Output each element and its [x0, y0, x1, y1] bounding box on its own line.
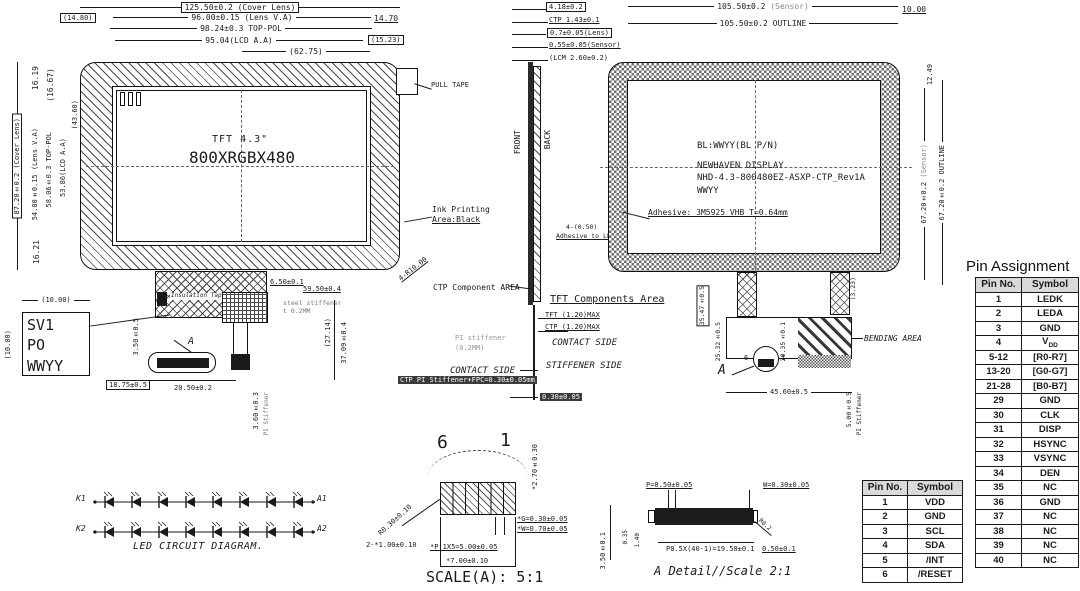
table-cell: 3 — [976, 321, 1022, 336]
extension-line — [668, 490, 669, 508]
dim-label-box-width: (10.00) — [22, 296, 90, 304]
screen-size-label: TFT 4.3" — [212, 134, 268, 146]
table-cell: DEN — [1022, 466, 1079, 481]
dim-37-09: 37.09±0.4 — [340, 322, 348, 364]
table-row: 40NC — [976, 553, 1079, 568]
detail-a-ref-back: A — [718, 364, 726, 379]
table-cell: 39 — [976, 539, 1022, 554]
side-fpc-line — [533, 305, 535, 400]
dim-connector-end-pads: 2-*1.00±0.10 — [366, 541, 417, 549]
part-number-label: NHD-4.3-800480EZ-ASXP-CTP_Rev1A — [697, 173, 865, 183]
dim-side-lcm: (LCM 2.60±0.2) — [549, 54, 608, 62]
table-cell: GND — [908, 510, 963, 525]
table-cell: 4 — [976, 336, 1022, 351]
led-pad — [136, 92, 141, 106]
dim-43-60: (43.60) — [71, 100, 79, 130]
table-cell: LEDK — [1022, 292, 1079, 307]
pin-table-ctp: Pin No. Symbol 1VDD2GND3SCL4SDA5/INT6/RE… — [862, 480, 963, 583]
dim-fpc-stack: CTP PI Stiffener+FPC=0.30±0.05mm — [398, 376, 537, 384]
table-cell: [B0-B7] — [1022, 379, 1079, 394]
table-cell: NC — [1022, 539, 1079, 554]
pull-tape-tab — [396, 68, 418, 95]
adhesive-lens-note-line1: 4-(0.50) — [566, 224, 597, 231]
table-cell: [R0-R7] — [1022, 350, 1079, 365]
leader-line — [404, 217, 432, 223]
table-cell: VSYNC — [1022, 452, 1079, 467]
extension-line — [538, 331, 568, 332]
detail-a-connector — [148, 352, 216, 373]
dim-16-21: 16.21 — [32, 240, 41, 264]
table-row: 33VSYNC — [976, 452, 1079, 467]
dim-front-lens-va-height: 54.80±0.15 (Lens V.A) — [31, 128, 39, 220]
bending-area-label: BENDING AREA — [864, 334, 922, 343]
pin-table-ctp-header-pin: Pin No. — [863, 481, 908, 496]
dim-front-top-pol-width: 98.24±0.3 TOP-POL — [110, 24, 372, 33]
table-cell: 31 — [976, 423, 1022, 438]
table-cell: 30 — [976, 408, 1022, 423]
table-row: 3GND — [976, 321, 1079, 336]
pin-table-main-header-pin: Pin No. — [976, 278, 1022, 293]
leader-line — [852, 338, 863, 339]
leader-line — [520, 370, 538, 371]
dim-25-32: 25.32±0.5 — [715, 322, 722, 361]
connector-pin6-label: 6 — [437, 433, 448, 454]
contact-side-right-label: CONTACT SIDE — [552, 338, 617, 348]
table-cell: 29 — [976, 394, 1022, 409]
table-cell: NC — [1022, 481, 1079, 496]
dim-10-00: 10.00 — [902, 5, 926, 14]
serial-label-box: SV1 PO WWYY — [22, 312, 90, 376]
stiffener-strip — [798, 355, 851, 368]
table-row: 29GND — [976, 394, 1079, 409]
dim-front-lcd-aa-width: 95.04(LCD A.A) — [115, 36, 363, 45]
table-row: 39NC — [976, 539, 1079, 554]
pin-table-main-header-symbol: Symbol — [1022, 278, 1079, 293]
detail-pin6-label: 6 — [744, 354, 748, 362]
led-string-1 — [93, 490, 315, 510]
ink-printing-note-line1: Ink Printing — [432, 205, 490, 214]
date-code-label: WWYY — [697, 186, 719, 196]
led-pad — [120, 92, 125, 106]
dim-45-60: 45.60±0.5 — [726, 388, 852, 396]
extension-line — [440, 517, 441, 567]
extension-line — [512, 60, 548, 61]
led-diagram-caption: LED CIRCUIT DIAGRAM. — [133, 541, 263, 553]
screen-resolution-label: 800XRGBX480 — [152, 149, 332, 167]
dim-20-50: 20.50±0.2 — [174, 384, 212, 392]
dim-front-cover-height: 87.20±0.2 (Cover Lens) — [12, 62, 22, 270]
table-cell: 2 — [976, 307, 1022, 322]
dim-ctp-max: CTP (1.20)MAX — [545, 323, 600, 331]
table-row: 30CLK — [976, 408, 1079, 423]
table-cell: 13-20 — [976, 365, 1022, 380]
fpc-connector-end — [231, 354, 250, 370]
dim-a-pad: W=0.30±0.05 — [763, 481, 809, 489]
a-detail-contact-bar — [655, 508, 753, 525]
table-row: 1LEDK — [976, 292, 1079, 307]
leader-line — [90, 314, 169, 326]
extension-line — [610, 505, 611, 560]
pin-table-ctp-header-symbol: Symbol — [908, 481, 963, 496]
table-cell: SCL — [908, 524, 963, 539]
dim-side-ctp: CTP 1.43±0.1 — [549, 16, 600, 24]
table-row: 5-12[R0-R7] — [976, 350, 1079, 365]
table-cell: 5-12 — [976, 350, 1022, 365]
pi-stiffener-side-line1: PI stiffener — [455, 334, 506, 342]
led-a2-label: A2 — [317, 524, 327, 533]
table-cell: 5 — [863, 553, 908, 568]
steel-stiffener-label-line2: t 0.2MM — [283, 308, 310, 315]
dim-3-50-front: 3.50±0.5 — [132, 318, 140, 356]
corner-radius-label: 4-R10.00 — [397, 255, 429, 282]
dimension-line — [658, 542, 754, 543]
table-cell: 1 — [863, 495, 908, 510]
contact-side-left-label: CONTACT SIDE — [450, 366, 515, 376]
table-cell: 35 — [976, 481, 1022, 496]
table-cell: NC — [1022, 524, 1079, 539]
dim-connector-height: *2.70±0.30 — [531, 444, 539, 490]
dim-a-0-50: 0.50±0.1 — [762, 545, 796, 553]
table-cell: /INT — [908, 553, 963, 568]
serial-line3: WWYY — [27, 356, 85, 376]
table-cell: VDD — [1022, 336, 1079, 351]
brand-label: NEWHAVEN DISPLAY — [697, 161, 784, 171]
dim-side-sensor: 0.55±0.05(Sensor) — [549, 41, 621, 49]
table-row: 31DISP — [976, 423, 1079, 438]
table-cell: 3 — [863, 524, 908, 539]
ctp-component-area-label: CTP Component AREA — [433, 283, 520, 292]
table-cell: 32 — [976, 437, 1022, 452]
connector-contact-bar — [157, 358, 209, 368]
dim-0-30: 0.30±0.05 — [540, 393, 582, 401]
extension-line — [512, 47, 548, 48]
adhesive-note: Adhesive: 3M5925 VHB T=0.64mm — [648, 208, 788, 217]
serial-line1: SV1 — [27, 315, 85, 335]
connector-pin1-label: 1 — [500, 431, 511, 452]
table-cell: 21-28 — [976, 379, 1022, 394]
insulation-tape-label: Insulation Tape — [170, 293, 226, 300]
table-cell: DISP — [1022, 423, 1079, 438]
drawing-sheet: 125.50±0.2 (Cover Lens) (14.80) 96.00±0.… — [0, 0, 1080, 591]
pin-table-main-body: 1LEDK2LEDA3GND4VDD5-12[R0-R7]13-20[G0-G7… — [976, 292, 1079, 568]
table-cell: GND — [1022, 321, 1079, 336]
dim-a-1-40: 1.40 — [635, 533, 642, 547]
dim-connector-pad-width: *W=0.70±0.05 — [517, 525, 568, 533]
table-row: 34DEN — [976, 466, 1079, 481]
dim-front-right-offset: 14.70 — [374, 14, 398, 23]
dim-front-cover-width: 125.50±0.2 (Cover Lens) — [80, 2, 400, 13]
dim-3-23: (3.23) — [850, 277, 857, 300]
connector-detail-caption: SCALE(A): 5:1 — [426, 569, 543, 586]
table-row: 32HSYNC — [976, 437, 1079, 452]
table-cell: NC — [1022, 553, 1079, 568]
dimension-line — [106, 380, 236, 381]
steel-stiffener-area — [222, 292, 268, 323]
dim-35-47: 35.47±0.5 — [696, 285, 709, 326]
led-k2-label: K2 — [76, 524, 86, 533]
table-row: 2GND — [863, 510, 963, 525]
bending-area-hatch — [798, 318, 851, 355]
table-row: 5/INT — [863, 553, 963, 568]
led-pads — [120, 92, 142, 106]
connector-arc — [428, 450, 528, 476]
detail-a-circle — [753, 346, 779, 372]
led-a1-label: A1 — [317, 494, 327, 503]
dim-back-sensor-width: 105.50±0.2 (Sensor) — [628, 2, 898, 11]
tail-pad — [157, 292, 167, 306]
dim-front-lcd-aa-height: 53.86(LCD A.A) — [59, 138, 67, 197]
dim-a-0-35: 0.35 — [623, 530, 630, 544]
table-row: 37NC — [976, 510, 1079, 525]
table-row: 21-28[B0-B7] — [976, 379, 1079, 394]
dim-connector-gap: *G=0.30±0.05 — [517, 515, 568, 523]
led-k1-label: K1 — [76, 494, 86, 503]
table-row: 2LEDA — [976, 307, 1079, 322]
extension-line — [495, 517, 496, 535]
detail-a-ref-front: A — [188, 336, 194, 348]
pin-assignment-title: Pin Assignment — [966, 258, 1069, 275]
side-front-label: FRONT — [513, 130, 522, 154]
dim-a-length: P0.5X(40-1)=19.50±0.1 — [666, 545, 755, 553]
dim-back-sensor-height: 67.20±0.2 (Sensor) — [920, 88, 928, 280]
tft-components-area-label: TFT Components Area — [550, 294, 664, 306]
table-cell: 36 — [976, 495, 1022, 510]
table-cell: [G0-G7] — [1022, 365, 1079, 380]
table-cell: VDD — [908, 495, 963, 510]
extension-line — [538, 318, 568, 319]
dim-side-total: 4.18±0.2 — [546, 2, 586, 12]
ink-printing-note-line2: Area:Black — [432, 215, 480, 224]
led-string-2 — [93, 520, 315, 540]
pi-stiffener-note-back: PI Stiffener — [857, 392, 864, 435]
table-cell: 6 — [863, 568, 908, 583]
serial-line2: PO — [27, 335, 85, 355]
table-cell: NC — [1022, 510, 1079, 525]
extension-line — [512, 22, 548, 23]
table-row: 35NC — [976, 481, 1079, 496]
extension-line — [515, 517, 516, 567]
dim-a-3-50: 3.50±0.1 — [599, 532, 607, 570]
pi-stiffener-side-line2: (0.2MM) — [455, 344, 485, 352]
dim-front-top-pol-height: 58.06±0.3 TOP-POL — [45, 132, 53, 207]
detail-a-contact-bar — [758, 359, 774, 367]
dim-6-50: 6.50±0.1 — [270, 278, 304, 286]
table-cell: 38 — [976, 524, 1022, 539]
dim-59-50: 59.50±0.4 — [303, 285, 341, 293]
table-row: 3SCL — [863, 524, 963, 539]
table-cell: /RESET — [908, 568, 963, 583]
table-cell: HSYNC — [1022, 437, 1079, 452]
dim-20-35: 20.35±0.1 — [780, 322, 787, 361]
table-cell: 40 — [976, 553, 1022, 568]
leader-line — [732, 366, 755, 376]
connector-pads — [440, 482, 516, 515]
dim-12-49: 12.49 — [926, 64, 934, 85]
dim-16-19: 16.19 — [31, 66, 40, 90]
dimension-line — [440, 566, 516, 567]
table-cell: LEDA — [1022, 307, 1079, 322]
pull-tape-label: PULL TAPE — [431, 81, 469, 89]
dim-connector-width: *7.00±0.10 — [446, 557, 488, 565]
table-cell: 1 — [976, 292, 1022, 307]
backlight-pn-label: BL:WWYY(BL P/N) — [697, 141, 778, 151]
table-row: 4VDD — [976, 336, 1079, 351]
extension-line — [504, 517, 505, 535]
dim-back-outline-width: 105.50±0.2 OUTLINE — [628, 19, 898, 28]
table-cell: GND — [1022, 495, 1079, 510]
dim-front-lens-va-width: 96.00±0.15 (Lens V.A) — [113, 13, 371, 22]
table-cell: 33 — [976, 452, 1022, 467]
a-detail-caption: A Detail//Scale 2:1 — [654, 565, 791, 579]
table-cell: 2 — [863, 510, 908, 525]
dim-front-right-offset2: (15.23) — [368, 35, 404, 45]
table-cell: GND — [1022, 394, 1079, 409]
a-detail-left-step — [648, 510, 655, 523]
dim-5-00: 5.00±0.5 — [846, 392, 853, 427]
side-profile-lcm — [533, 66, 541, 302]
table-cell: 4 — [863, 539, 908, 554]
back-tape-tab-right — [830, 272, 850, 315]
extension-line — [675, 490, 676, 508]
dim-27-14: (27.14) — [324, 318, 332, 348]
table-row: 1VDD — [863, 495, 963, 510]
table-cell: 34 — [976, 466, 1022, 481]
dim-3-60: 3.60±0.3 — [252, 392, 260, 430]
dim-front-center-width: (62.75) — [242, 47, 370, 56]
table-cell: CLK — [1022, 408, 1079, 423]
dim-back-outline-height: 67.20±0.2 OUTLINE — [938, 80, 946, 285]
extension-line — [512, 9, 546, 10]
table-row: 4SDA — [863, 539, 963, 554]
table-row: 13-20[G0-G7] — [976, 365, 1079, 380]
extension-line — [749, 490, 750, 508]
extension-line — [334, 300, 335, 380]
table-cell: SDA — [908, 539, 963, 554]
table-row: 38NC — [976, 524, 1079, 539]
table-row: 36GND — [976, 495, 1079, 510]
table-cell: 37 — [976, 510, 1022, 525]
stiffener-side-label: STIFFENER SIDE — [546, 361, 622, 371]
dim-label-box-height: (10.00) — [4, 330, 12, 360]
extension-line — [512, 34, 546, 35]
fpc-tail — [233, 322, 248, 356]
pin-table-main: Pin No. Symbol 1LEDK2LEDA3GND4VDD5-12[R0… — [975, 277, 1079, 568]
dim-16-67: (16.67) — [46, 68, 55, 102]
back-tape-tab-left — [737, 272, 757, 317]
dim-front-left-offset: (14.80) — [60, 13, 96, 23]
pin-table-ctp-body: 1VDD2GND3SCL4SDA5/INT6/RESET — [863, 495, 963, 582]
table-row: 6/RESET — [863, 568, 963, 583]
pi-stiffener-note-front: PI Stiffener — [264, 392, 271, 435]
led-pad — [128, 92, 133, 106]
dim-a-pitch: P=0.50±0.05 — [646, 481, 692, 489]
dim-18-75: 18.75±0.5 — [106, 380, 150, 390]
extension-line — [510, 397, 538, 398]
dim-side-lens: 0.7±0.05(Lens) — [547, 28, 612, 38]
side-back-label: BACK — [543, 130, 552, 149]
dim-connector-pitch: *P 1X5=5.00±0.05 — [430, 543, 497, 551]
